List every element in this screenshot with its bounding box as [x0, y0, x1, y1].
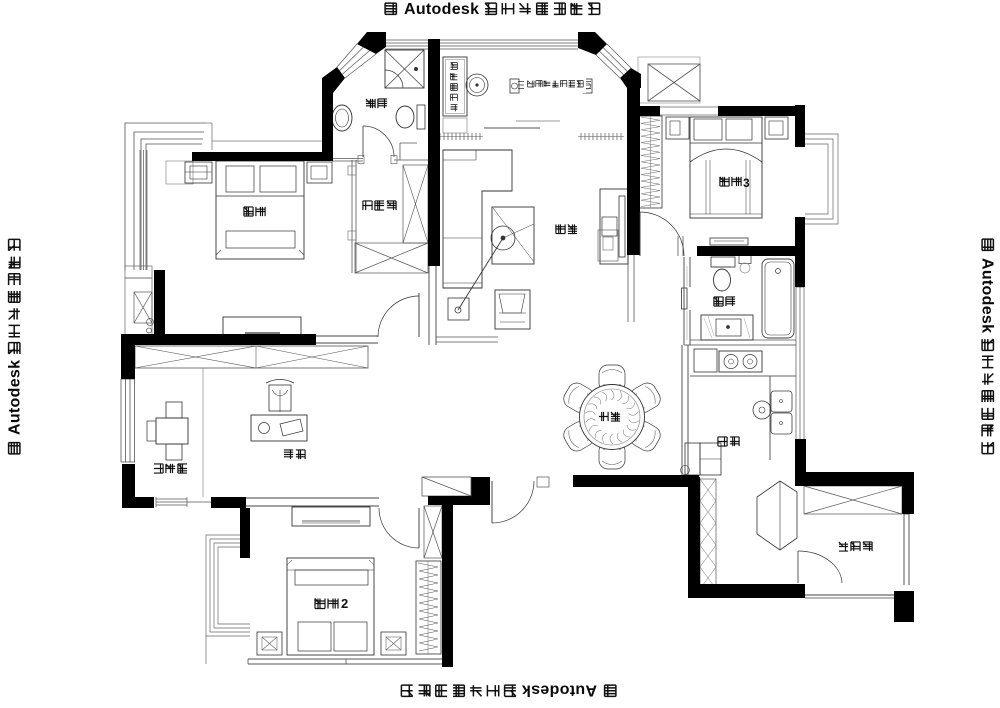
svg-text:3: 3 [743, 176, 750, 190]
svg-text:Autodesk: Autodesk [7, 360, 24, 435]
svg-text:2: 2 [341, 596, 348, 611]
svg-text:Autodesk: Autodesk [522, 682, 597, 699]
svg-text:Autodesk: Autodesk [979, 258, 996, 333]
svg-text:Autodesk: Autodesk [404, 1, 479, 18]
